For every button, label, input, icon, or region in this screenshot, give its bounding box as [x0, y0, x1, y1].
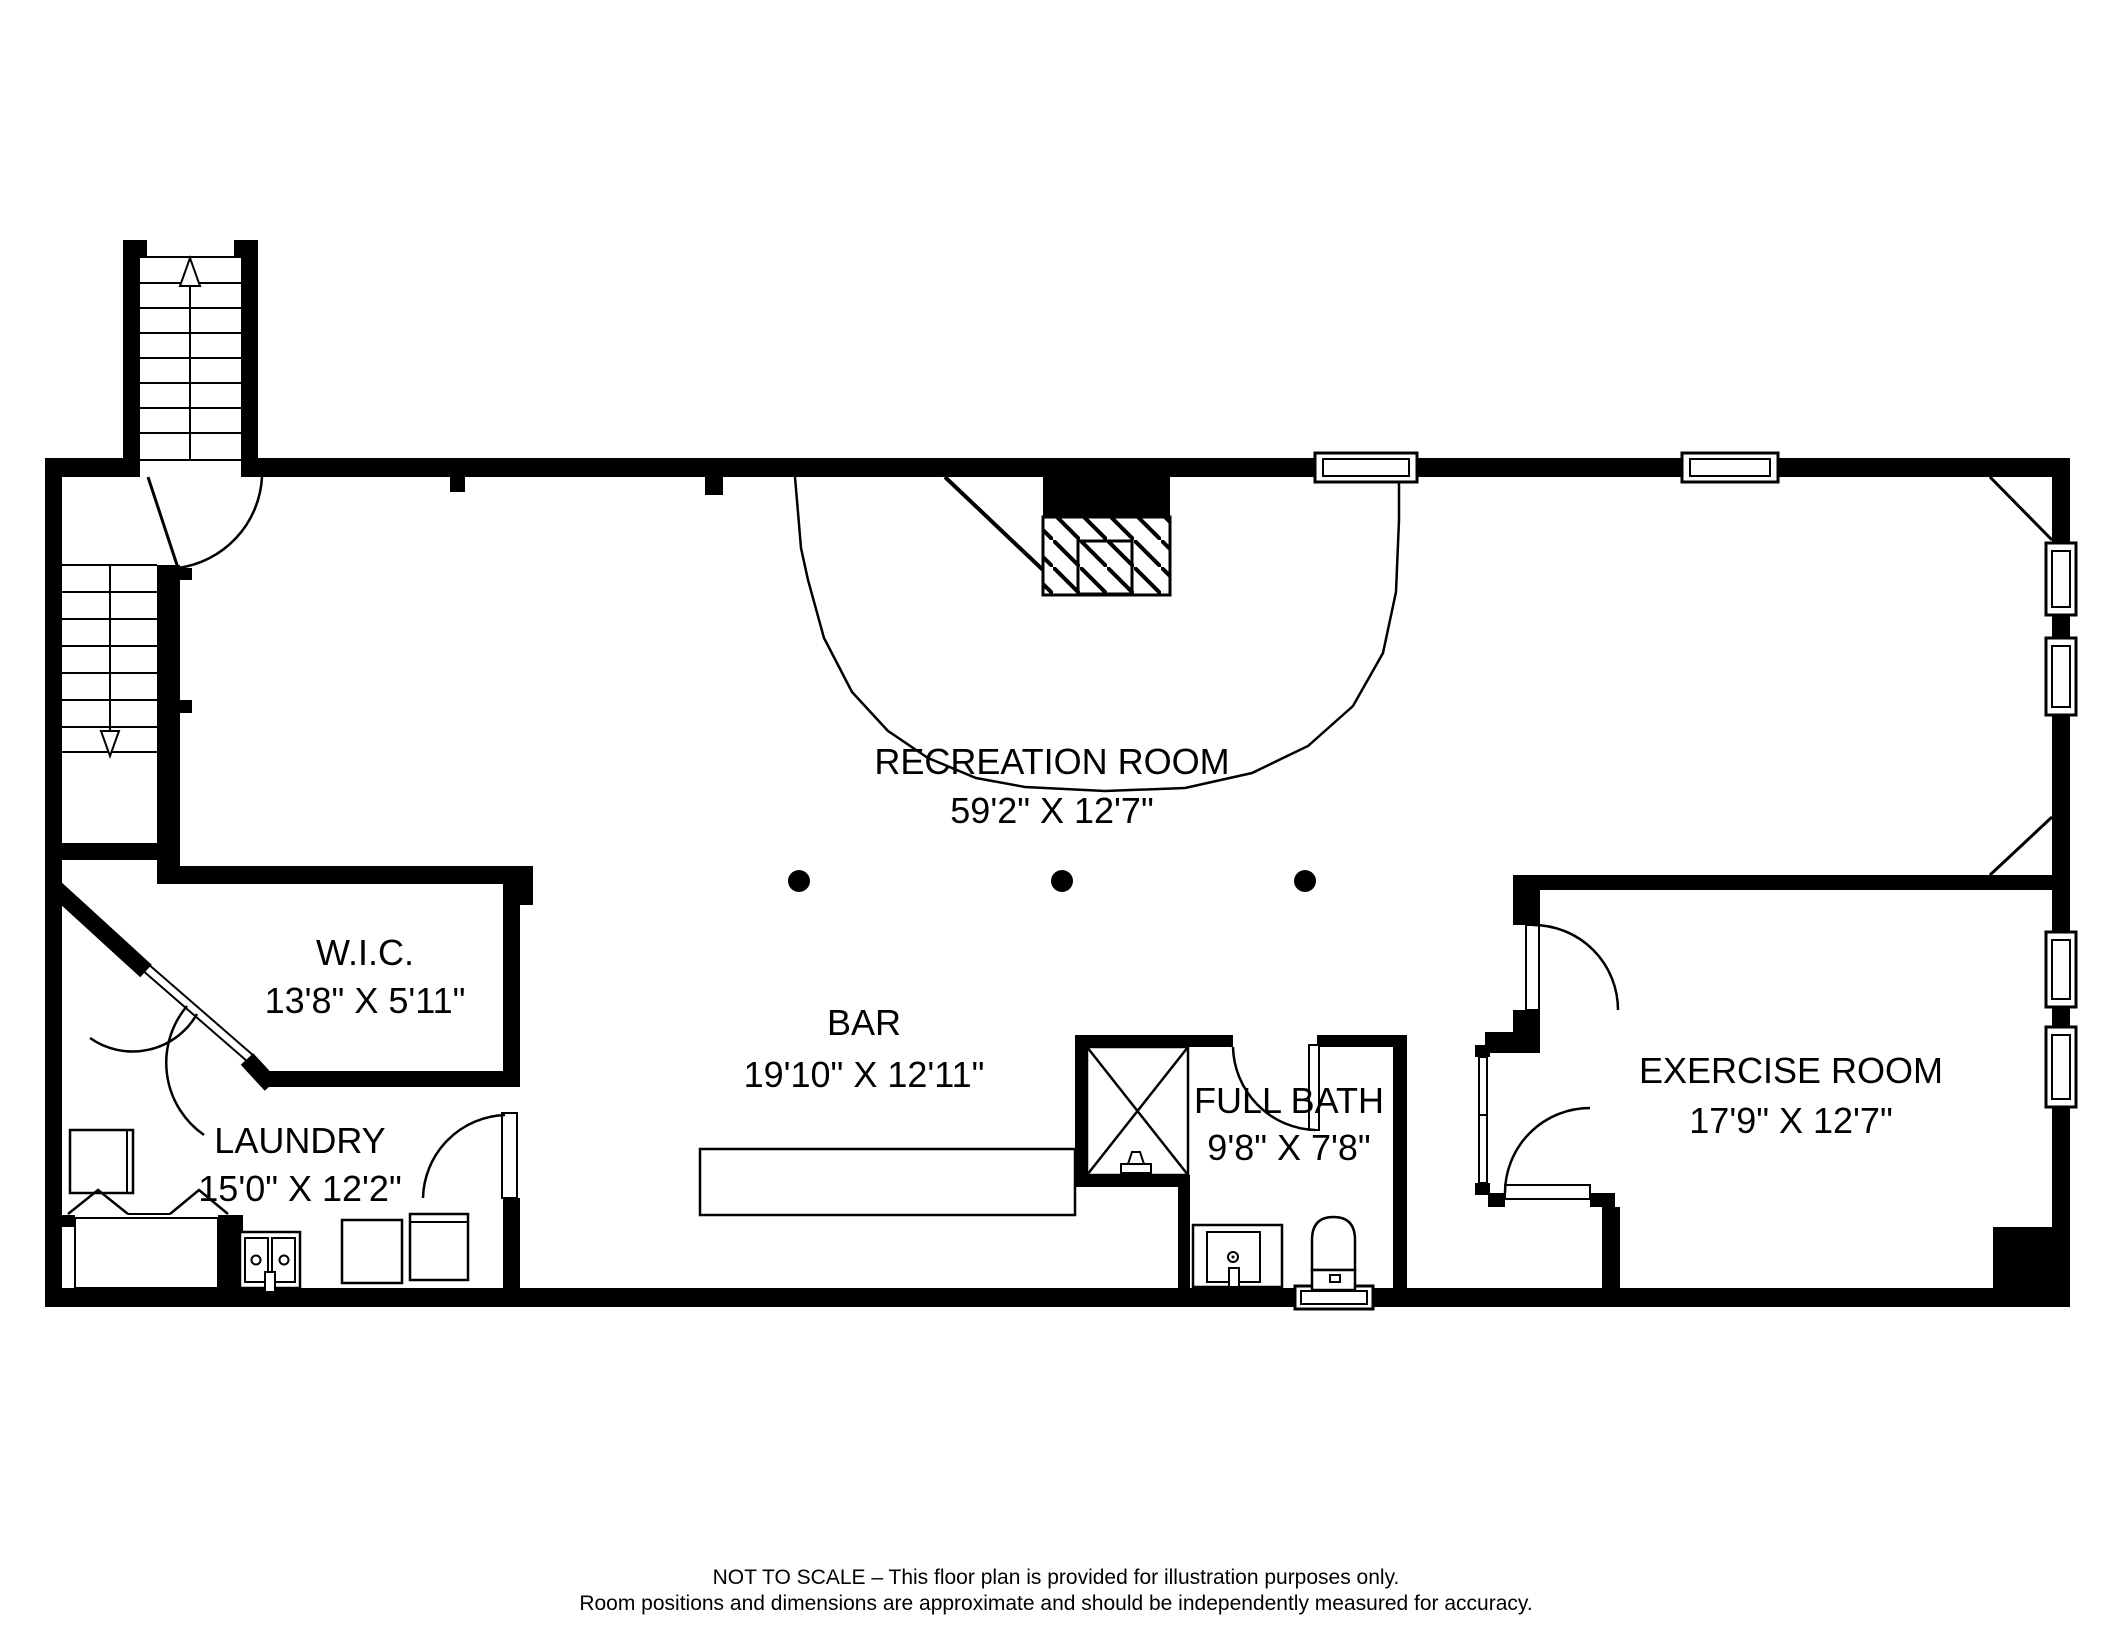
recreation-room-dims: 59'2" X 12'7" [950, 787, 1153, 835]
door-laundry [423, 1113, 517, 1198]
room-label-full-bath: FULL BATH [1194, 1077, 1384, 1125]
washer-icon [342, 1220, 402, 1283]
wic-dims: 13'8" X 5'11" [265, 977, 466, 1025]
window-top-2 [1682, 453, 1778, 482]
laundry-dims: 15'0" X 12'2" [198, 1165, 401, 1213]
wic-name: W.I.C. [316, 929, 414, 977]
window-right-2 [2046, 638, 2076, 715]
toilet-icon [1312, 1217, 1355, 1290]
room-dims-recreation: 59'2" X 12'7" [950, 787, 1153, 835]
door-stair-tower [148, 477, 262, 568]
exercise-room-dims: 17'9" X 12'7" [1689, 1097, 1892, 1145]
footer-disclaimer-line1: NOT TO SCALE – This floor plan is provid… [713, 1565, 1400, 1591]
room-dims-wic: 13'8" X 5'11" [265, 977, 466, 1025]
diagonal-walls [53, 886, 271, 1085]
full-bath-name: FULL BATH [1194, 1077, 1384, 1125]
room-dims-bar: 19'10" X 12'11" [744, 1051, 985, 1099]
bar-dims: 19'10" X 12'11" [744, 1051, 985, 1099]
stairs-up-arrow-icon [180, 258, 200, 286]
door-closet [1505, 1108, 1590, 1199]
room-dims-laundry: 15'0" X 12'2" [198, 1165, 401, 1213]
door-pocket-panel [1479, 1057, 1487, 1183]
vanity-sink-icon [1193, 1225, 1282, 1287]
bar-counter [700, 1149, 1075, 1215]
room-dims-exercise: 17'9" X 12'7" [1689, 1097, 1892, 1145]
room-label-laundry: LAUNDRY [214, 1117, 385, 1165]
stairs-up [140, 257, 241, 460]
stairs-down [62, 565, 157, 756]
door-exercise [1526, 925, 1618, 1010]
room-dims-full-bath: 9'8" X 7'8" [1207, 1124, 1370, 1172]
room-label-wic: W.I.C. [316, 929, 414, 977]
window-right-4 [2046, 1027, 2076, 1107]
window-top-1 [1315, 453, 1417, 482]
footer-disclaimer-line2: Room positions and dimensions are approx… [579, 1591, 1532, 1617]
room-label-recreation: RECREATION ROOM [874, 738, 1229, 786]
room-label-exercise: EXERCISE ROOM [1639, 1047, 1943, 1095]
laundry-sink-icon [240, 1232, 300, 1292]
floor-plan-page: RECREATION ROOM 59'2" X 12'7" W.I.C. 13'… [0, 0, 2112, 1632]
recreation-room-name: RECREATION ROOM [874, 738, 1229, 786]
laundry-name: LAUNDRY [214, 1117, 385, 1165]
bar-name: BAR [827, 999, 901, 1047]
utility-appliance [70, 1130, 133, 1193]
shower-icon [1087, 1047, 1188, 1175]
exercise-room-name: EXERCISE ROOM [1639, 1047, 1943, 1095]
fireplace-icon [945, 477, 1170, 595]
window-right-3 [2046, 932, 2076, 1007]
chamfer-lines [1990, 477, 2052, 875]
door-wic-double [90, 963, 254, 1135]
window-right-1 [2046, 543, 2076, 615]
full-bath-dims: 9'8" X 7'8" [1207, 1124, 1370, 1172]
columns-icon [788, 870, 1316, 892]
dryer-icon [410, 1214, 468, 1280]
room-label-bar: BAR [827, 999, 901, 1047]
